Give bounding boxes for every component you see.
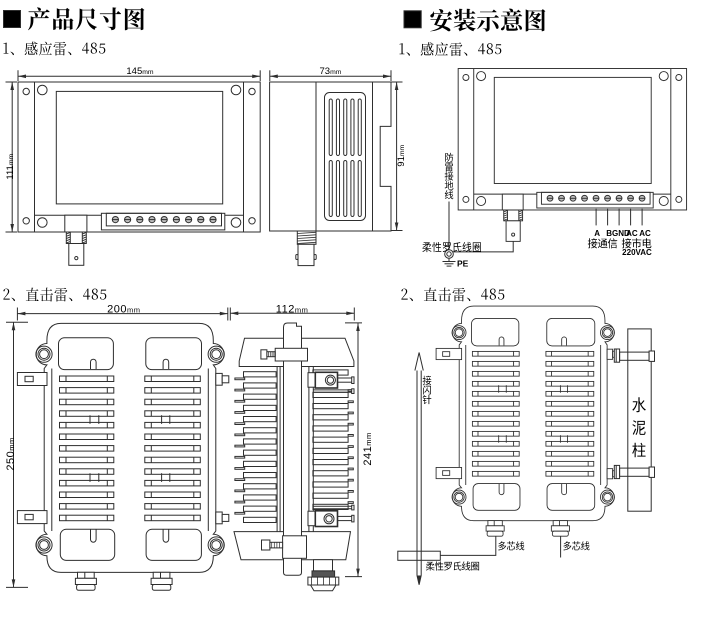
svg-text:220VAC: 220VAC [622,248,652,257]
svg-text:AC: AC [626,229,638,238]
svg-text:250mm: 250mm [5,437,17,470]
svg-text:PE: PE [457,259,469,269]
svg-text:112mm: 112mm [276,304,309,316]
svg-text:AC: AC [639,229,651,238]
svg-text:200mm: 200mm [107,304,140,316]
svg-text:A: A [594,229,600,238]
svg-text:241mm: 241mm [362,432,374,465]
